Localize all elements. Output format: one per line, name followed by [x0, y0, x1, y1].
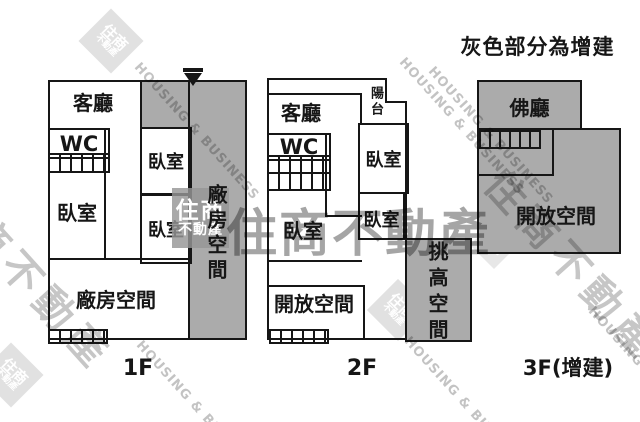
- f2-wall-open-top: [267, 285, 365, 287]
- f1-stairs: [48, 153, 110, 173]
- f2-wall-notch-v: [385, 78, 387, 103]
- f3-buddha-hall-label: 佛廳: [510, 92, 550, 121]
- f2-wall-bottom: [267, 338, 407, 340]
- f2-wall-corridor-v: [325, 133, 327, 217]
- f1-bedroom-a: 臥室: [140, 127, 192, 195]
- f1-wall-top: [48, 80, 247, 82]
- f2-bedroom-b: 臥室: [358, 192, 405, 240]
- f3-floor-label: 3F(增建): [518, 357, 618, 379]
- f2-open-space-label: 開放空間: [272, 294, 356, 315]
- f2-wall-balcony-bottom: [360, 123, 407, 125]
- f1-factory-bottom-label: 廠房空間: [66, 290, 166, 311]
- f2-bed-a-label: 臥室: [366, 146, 402, 172]
- f2-wall-corridor-h: [325, 215, 362, 217]
- brand-watermark-diagonal: 住商不動產: [0, 165, 129, 382]
- f2-high-ceiling-label: 挑高空間: [423, 241, 452, 345]
- entrance-marker-triangle-icon: [184, 73, 202, 86]
- f1-wall-bottom: [48, 338, 247, 340]
- addition-note: 灰色部分為增建: [460, 36, 615, 58]
- f1-wall-strip-left: [188, 80, 190, 340]
- f1-factory-vertical-label: 廠房空間: [202, 184, 231, 284]
- f2-wall-mid-horizontal: [267, 260, 362, 262]
- f2-bedroom-a: 臥室: [358, 123, 409, 194]
- f2-bed-b-label: 臥室: [364, 206, 400, 232]
- f2-floor-label: 2F: [342, 357, 382, 380]
- brand-stamp-watermark: 住商 不動產: [0, 342, 44, 407]
- housing-watermark: HOUSING & BUSINESS: [401, 334, 532, 422]
- f2-balcony-label: 陽台: [366, 86, 385, 118]
- brand-stamp-watermark: 住商 不動產: [78, 8, 143, 73]
- f1-window-hatch: [48, 329, 108, 344]
- f2-wall-open-right: [363, 285, 365, 340]
- f2-window-hatch: [269, 329, 329, 344]
- f2-wall-right: [405, 101, 407, 340]
- f1-bedroom-b: 臥室: [140, 194, 192, 264]
- f2-stairs: [267, 155, 331, 191]
- f1-bed-b-label: 臥室: [148, 216, 184, 242]
- f1-wall-corridor: [104, 128, 106, 260]
- entrance-marker-bar-icon: [183, 68, 203, 72]
- f1-wall-mid-horizontal: [48, 258, 190, 260]
- f2-living-label: 客廳: [261, 103, 341, 124]
- f1-living-label: 客廳: [53, 93, 133, 114]
- f2-wall-topband: [267, 93, 362, 95]
- f1-wall-right: [245, 80, 247, 340]
- f1-bed-left-label: 臥室: [48, 203, 106, 224]
- f2-wall-notch-h: [385, 101, 407, 103]
- f2-wall-top: [267, 78, 387, 80]
- f2-bed-left-label: 臥室: [263, 221, 343, 242]
- f1-bed-a-label: 臥室: [148, 148, 184, 174]
- floorplan-canvas: 住商 不動產 住商 不動產 住商 不動產 住商 HOUSING & BUSINE…: [0, 0, 640, 422]
- f3-open-space-label: 開放空間: [506, 206, 606, 227]
- f2-wall-balcony-divider: [360, 93, 362, 125]
- f1-wc-label: WC: [60, 132, 99, 156]
- f1-wall-grayband-left: [140, 80, 142, 129]
- f1-floor-label: 1F: [118, 357, 158, 380]
- f3-stairs: [479, 130, 541, 149]
- f3-buddha-hall: 佛廳: [477, 80, 582, 132]
